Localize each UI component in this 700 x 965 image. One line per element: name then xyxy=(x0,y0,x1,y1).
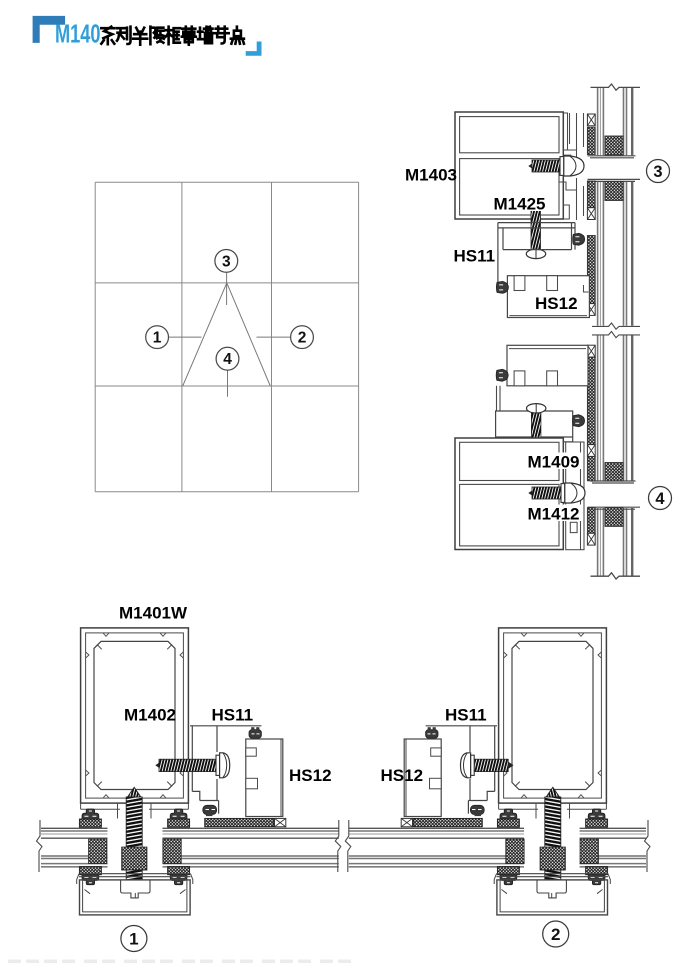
svg-text:3: 3 xyxy=(653,163,662,181)
svg-text:M1409: M1409 xyxy=(528,453,580,472)
svg-text:M1401W: M1401W xyxy=(119,604,188,623)
svg-text:4: 4 xyxy=(223,351,232,368)
svg-text:1: 1 xyxy=(153,330,162,347)
svg-text:2: 2 xyxy=(298,330,307,347)
svg-text:M1412: M1412 xyxy=(528,505,580,524)
svg-text:M140: M140 xyxy=(55,21,101,49)
svg-text:4: 4 xyxy=(655,490,665,508)
svg-text:HS11: HS11 xyxy=(212,706,254,725)
svg-text:HS11: HS11 xyxy=(454,247,496,266)
svg-text:HS12: HS12 xyxy=(381,766,424,785)
svg-text:HS11: HS11 xyxy=(445,706,487,725)
svg-text:M1403: M1403 xyxy=(405,166,457,185)
svg-text:2: 2 xyxy=(551,925,560,944)
svg-text:HS12: HS12 xyxy=(289,766,332,785)
svg-text:HS12: HS12 xyxy=(535,294,578,313)
svg-text:3: 3 xyxy=(222,253,231,270)
svg-text:1: 1 xyxy=(129,930,138,949)
svg-text:M1402: M1402 xyxy=(124,706,176,725)
svg-text:M1425: M1425 xyxy=(494,195,546,214)
